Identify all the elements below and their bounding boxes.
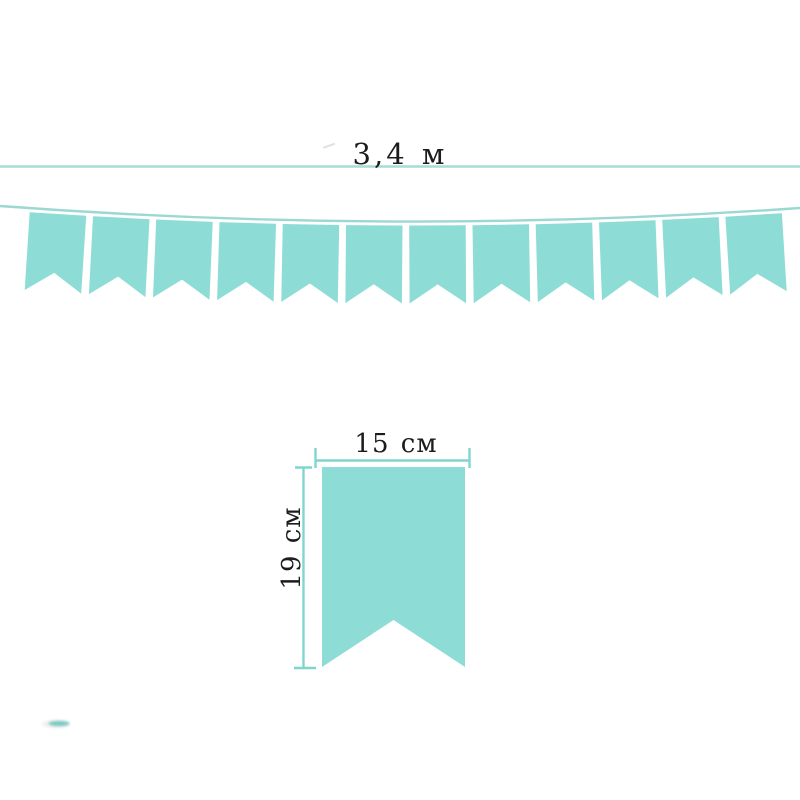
pennant-flag (662, 217, 722, 298)
pennant-flag (153, 220, 213, 300)
total-length-label: 3,4 м (0, 140, 800, 169)
pennant-flag (345, 225, 402, 303)
pennant-flag (409, 225, 466, 303)
product-image: 3,4 м 15 см 19 см (0, 0, 800, 800)
pennant-flag (281, 224, 339, 303)
pennant-flag (599, 220, 659, 300)
pennant-flag (25, 212, 86, 293)
garland-artwork (0, 0, 800, 800)
flag-height-label: 19 см (279, 506, 305, 589)
large-pennant-flag (322, 467, 465, 667)
pennant-flag (473, 224, 531, 303)
pennant-flag (89, 216, 150, 297)
pennant-flag (536, 223, 595, 303)
watermark-smudge (49, 721, 70, 726)
pennant-flag (217, 222, 276, 302)
flag-width-label: 15 см (296, 431, 496, 457)
pennant-flag (725, 213, 786, 294)
